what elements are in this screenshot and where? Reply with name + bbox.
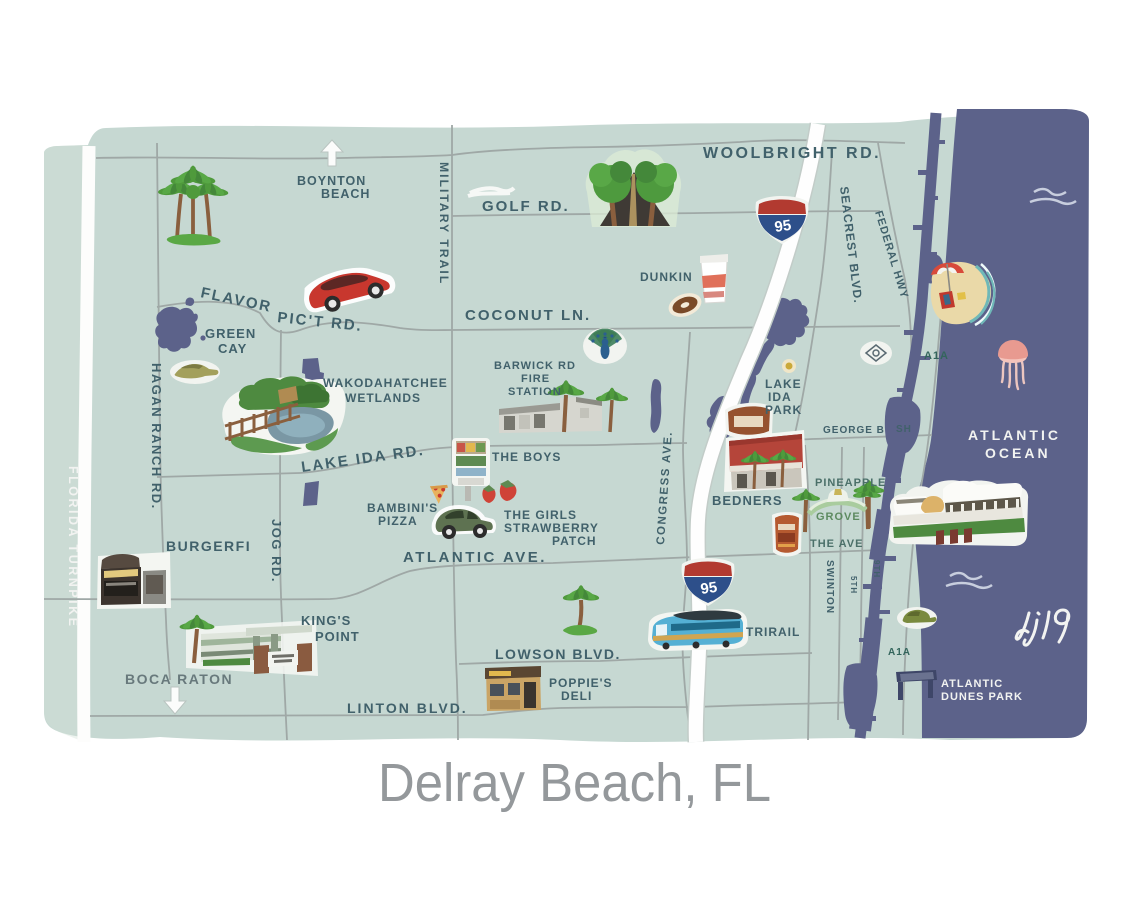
svg-text:OCEAN: OCEAN: [985, 445, 1051, 461]
svg-text:STRAWBERRY: STRAWBERRY: [504, 521, 599, 535]
svg-text:GEORGE B: GEORGE B: [823, 425, 885, 436]
svg-text:MILITARY TRAIL: MILITARY TRAIL: [437, 162, 451, 285]
svg-text:PATCH: PATCH: [552, 534, 597, 548]
svg-text:CAY: CAY: [218, 341, 247, 356]
svg-text:ATLANTIC AVE.: ATLANTIC AVE.: [403, 549, 547, 566]
svg-text:COCONUT LN.: COCONUT LN.: [465, 307, 591, 324]
svg-text:9TH: 9TH: [872, 560, 881, 578]
svg-text:DUNES PARK: DUNES PARK: [941, 691, 1023, 703]
svg-text:A1A: A1A: [924, 350, 949, 362]
svg-text:Delray Beach, FL: Delray Beach, FL: [378, 753, 771, 813]
svg-text:BARWICK RD: BARWICK RD: [494, 360, 576, 372]
svg-text:BOCA RATON: BOCA RATON: [125, 671, 233, 687]
svg-text:TRIRAIL: TRIRAIL: [746, 625, 800, 639]
svg-text:ATLANTIC: ATLANTIC: [941, 678, 1003, 690]
svg-text:POPPIE'S: POPPIE'S: [549, 676, 613, 690]
svg-text:ATLANTIC: ATLANTIC: [968, 427, 1061, 443]
svg-text:LOWSON BLVD.: LOWSON BLVD.: [495, 646, 621, 662]
svg-text:A1A: A1A: [888, 647, 911, 658]
svg-text:95: 95: [773, 217, 792, 236]
svg-text:DELI: DELI: [561, 689, 592, 703]
svg-text:5TH: 5TH: [849, 576, 858, 594]
svg-text:BEACH: BEACH: [321, 187, 370, 201]
svg-text:JOG RD.: JOG RD.: [269, 519, 284, 583]
svg-text:GREEN: GREEN: [205, 326, 256, 341]
svg-text:BAMBINI'S: BAMBINI'S: [367, 501, 438, 515]
svg-text:SWINTON: SWINTON: [824, 560, 835, 614]
svg-text:SH: SH: [896, 424, 912, 435]
svg-text:DUNKIN: DUNKIN: [640, 270, 693, 284]
svg-text:POINT: POINT: [315, 629, 360, 644]
svg-text:WAKODAHATCHEE: WAKODAHATCHEE: [323, 376, 448, 390]
svg-text:IDA: IDA: [768, 390, 792, 404]
svg-text:BOYNTON: BOYNTON: [297, 174, 366, 188]
svg-text:THE AVE: THE AVE: [810, 538, 863, 550]
svg-text:BURGERFI: BURGERFI: [166, 538, 251, 554]
svg-text:FIRE: FIRE: [521, 373, 550, 385]
svg-text:GOLF RD.: GOLF RD.: [482, 198, 570, 215]
svg-text:WETLANDS: WETLANDS: [345, 391, 421, 405]
svg-text:PARK: PARK: [765, 403, 802, 417]
svg-text:PIZZA: PIZZA: [378, 514, 418, 528]
svg-text:GROVE: GROVE: [816, 511, 861, 523]
svg-text:KING'S: KING'S: [301, 613, 351, 628]
svg-text:THE GIRLS: THE GIRLS: [504, 508, 577, 522]
svg-text:HAGAN RANCH RD.: HAGAN RANCH RD.: [149, 363, 164, 510]
svg-text:BEDNERS: BEDNERS: [712, 493, 783, 508]
svg-text:WOOLBRIGHT RD.: WOOLBRIGHT RD.: [703, 145, 881, 162]
svg-text:FLORIDA TURNPIKE: FLORIDA TURNPIKE: [66, 466, 80, 628]
svg-text:LINTON BLVD.: LINTON BLVD.: [347, 700, 468, 716]
svg-text:LAKE: LAKE: [765, 377, 802, 391]
svg-text:PINEAPPLE: PINEAPPLE: [815, 477, 886, 489]
svg-text:THE BOYS: THE BOYS: [492, 450, 561, 464]
svg-text:95: 95: [699, 579, 718, 598]
svg-text:STATION: STATION: [508, 386, 562, 398]
